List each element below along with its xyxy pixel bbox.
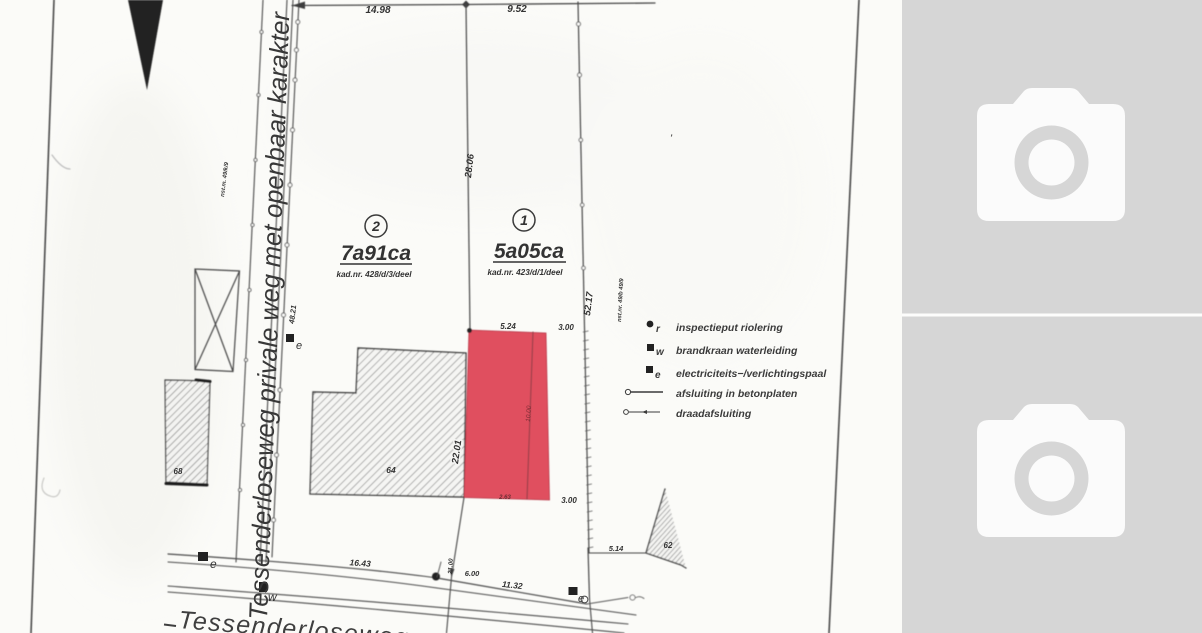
svg-text:kad.nr. 423/d/1/deel: kad.nr. 423/d/1/deel: [487, 268, 563, 277]
svg-text:2: 2: [371, 218, 380, 234]
svg-text:62: 62: [664, 541, 673, 550]
svg-text:64: 64: [386, 465, 396, 475]
svg-text:draadafsluiting: draadafsluiting: [676, 408, 752, 420]
svg-text:e: e: [296, 340, 302, 352]
svg-text:5.14: 5.14: [609, 544, 624, 553]
svg-text:e: e: [655, 370, 661, 381]
svg-text:16.43: 16.43: [349, 557, 371, 568]
svg-text:kad.nr. 428/d/3/deel: kad.nr. 428/d/3/deel: [336, 270, 412, 279]
svg-text:electriciteits−/verlichtingspa: electriciteits−/verlichtingspaal: [676, 368, 827, 380]
svg-text:w: w: [656, 347, 665, 358]
svg-text:brandkraan waterleiding: brandkraan waterleiding: [676, 345, 798, 357]
svg-text:3.00: 3.00: [558, 323, 574, 332]
svg-text:14.98: 14.98: [365, 5, 390, 16]
svg-text:21.00: 21.00: [447, 558, 455, 575]
svg-text:3.00: 3.00: [561, 496, 577, 505]
svg-text:inspectieput riolering: inspectieput riolering: [676, 322, 783, 334]
svg-text:1: 1: [520, 212, 528, 228]
svg-text:afsluiting in betonplaten: afsluiting in betonplaten: [676, 388, 797, 400]
svg-text:5a05ca: 5a05ca: [494, 240, 564, 263]
svg-text:10.00: 10.00: [525, 405, 533, 422]
svg-text:6.00: 6.00: [465, 569, 480, 578]
svg-text:5.24: 5.24: [500, 322, 516, 331]
svg-text:7a91ca: 7a91ca: [341, 242, 411, 265]
svg-text:68: 68: [174, 467, 183, 476]
svg-text:e: e: [210, 557, 217, 571]
svg-text:9.52: 9.52: [507, 4, 527, 15]
svg-text:2.63: 2.63: [498, 495, 511, 501]
